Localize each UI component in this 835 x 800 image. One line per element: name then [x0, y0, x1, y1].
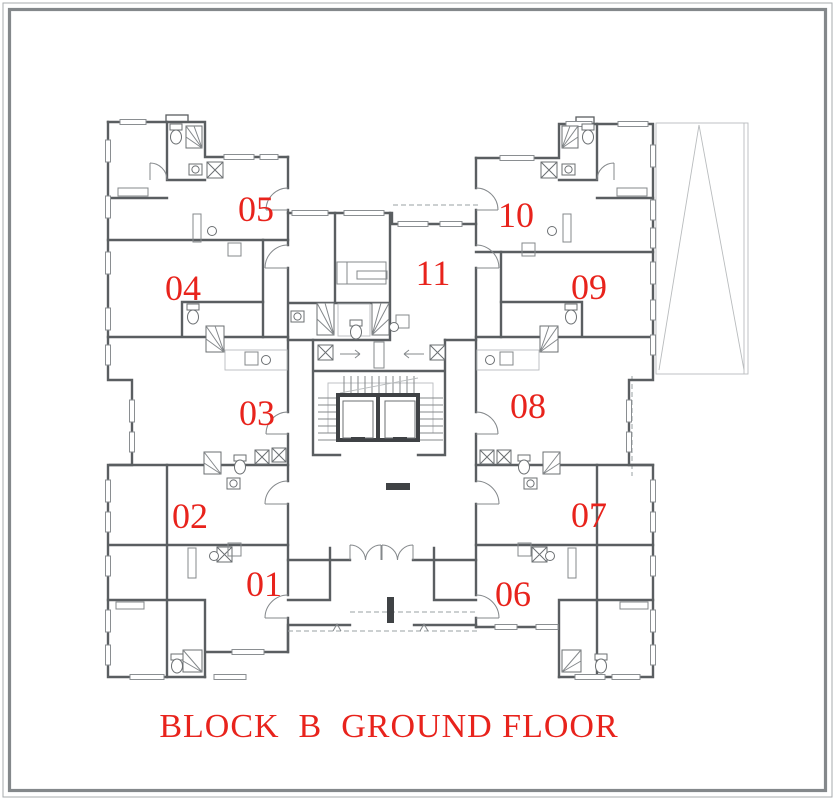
- unit-label-08: 08: [510, 386, 546, 426]
- unit-label-06: 06: [495, 574, 531, 614]
- bed: [337, 262, 386, 284]
- unit-label-01: 01: [246, 564, 282, 604]
- ramp-court-area: [632, 123, 748, 476]
- unit-label-05: 05: [238, 189, 274, 229]
- unit-label-10: 10: [498, 195, 534, 235]
- elevator-car-left: [343, 401, 373, 438]
- unit-label-04: 04: [165, 268, 201, 308]
- unit-label-03: 03: [239, 393, 275, 433]
- unit-label-11: 11: [416, 253, 451, 293]
- unit-label-09: 09: [571, 267, 607, 307]
- floor-plan-sheet: 01 02 03 04 05 06 07 08 09 10 11 BLOCK B…: [0, 0, 835, 800]
- elevator-car-right: [385, 401, 415, 438]
- entrance-door-leaf: [350, 545, 366, 560]
- ramp-triangle: [659, 125, 744, 370]
- direction-arrows: [340, 350, 424, 358]
- porch-column: [387, 597, 394, 623]
- page-title: BLOCK B GROUND FLOOR: [159, 708, 618, 745]
- unit-label-02: 02: [172, 496, 208, 536]
- main-entrance: [288, 483, 478, 631]
- elevator-core: [338, 395, 418, 442]
- unit-label-07: 07: [571, 495, 607, 535]
- lobby-column: [386, 483, 410, 490]
